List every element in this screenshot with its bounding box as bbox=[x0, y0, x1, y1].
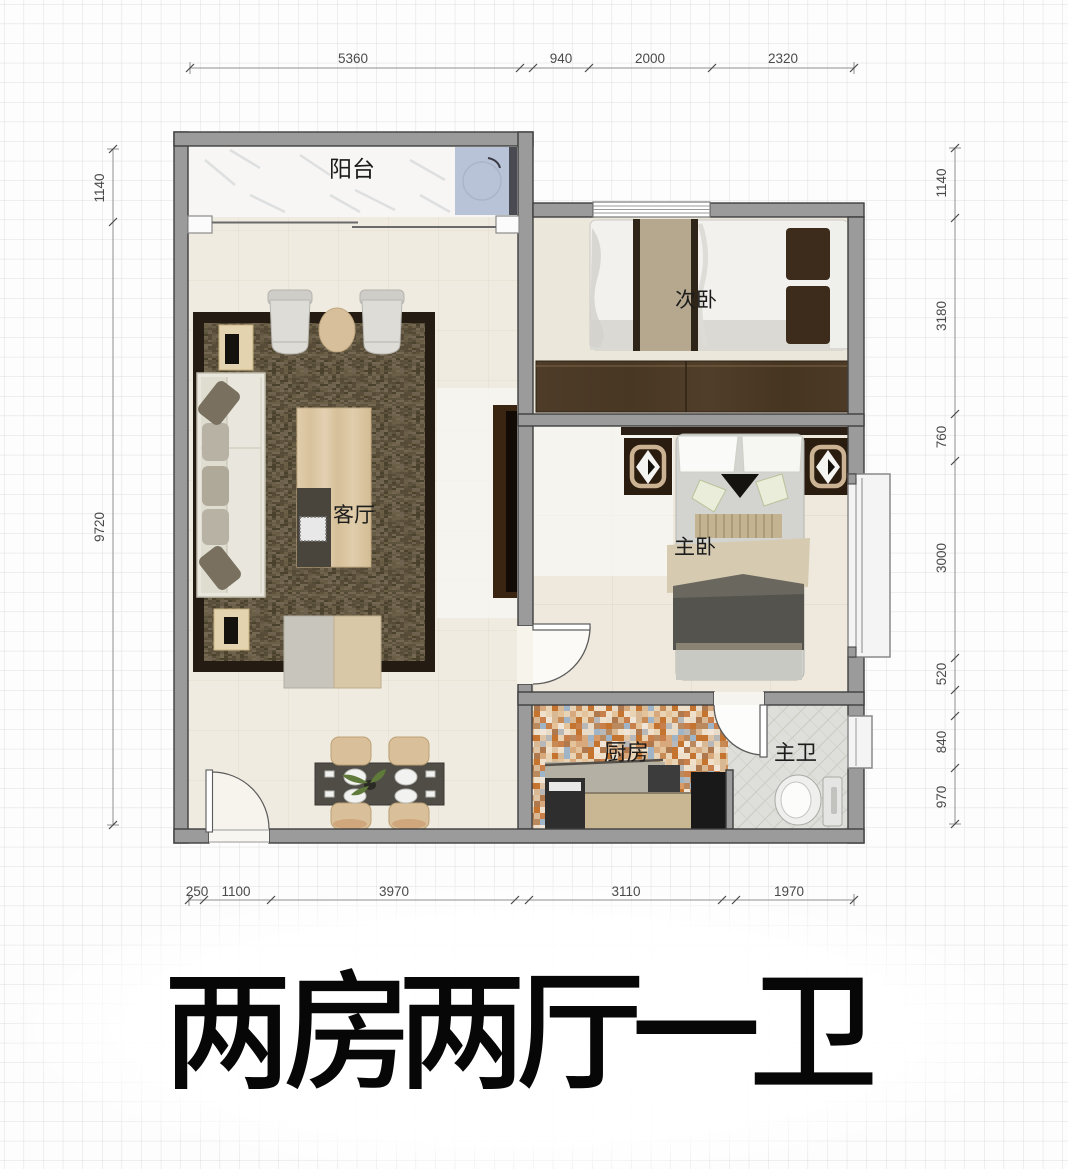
svg-text:9720: 9720 bbox=[92, 512, 107, 542]
svg-text:2320: 2320 bbox=[768, 51, 798, 66]
svg-text:1970: 1970 bbox=[774, 884, 804, 899]
svg-text:970: 970 bbox=[934, 786, 949, 809]
svg-text:3000: 3000 bbox=[934, 543, 949, 573]
svg-text:1140: 1140 bbox=[92, 173, 107, 202]
svg-text:3180: 3180 bbox=[934, 301, 949, 331]
svg-text:1140: 1140 bbox=[934, 168, 949, 197]
svg-text:520: 520 bbox=[934, 663, 949, 686]
svg-text:3970: 3970 bbox=[379, 884, 409, 899]
svg-text:250: 250 bbox=[186, 884, 209, 899]
svg-text:5360: 5360 bbox=[338, 51, 368, 66]
svg-text:840: 840 bbox=[934, 731, 949, 754]
svg-text:940: 940 bbox=[550, 51, 573, 66]
svg-text:1100: 1100 bbox=[221, 884, 250, 899]
svg-text:2000: 2000 bbox=[635, 51, 665, 66]
svg-text:3110: 3110 bbox=[611, 884, 640, 899]
svg-text:760: 760 bbox=[934, 426, 949, 449]
